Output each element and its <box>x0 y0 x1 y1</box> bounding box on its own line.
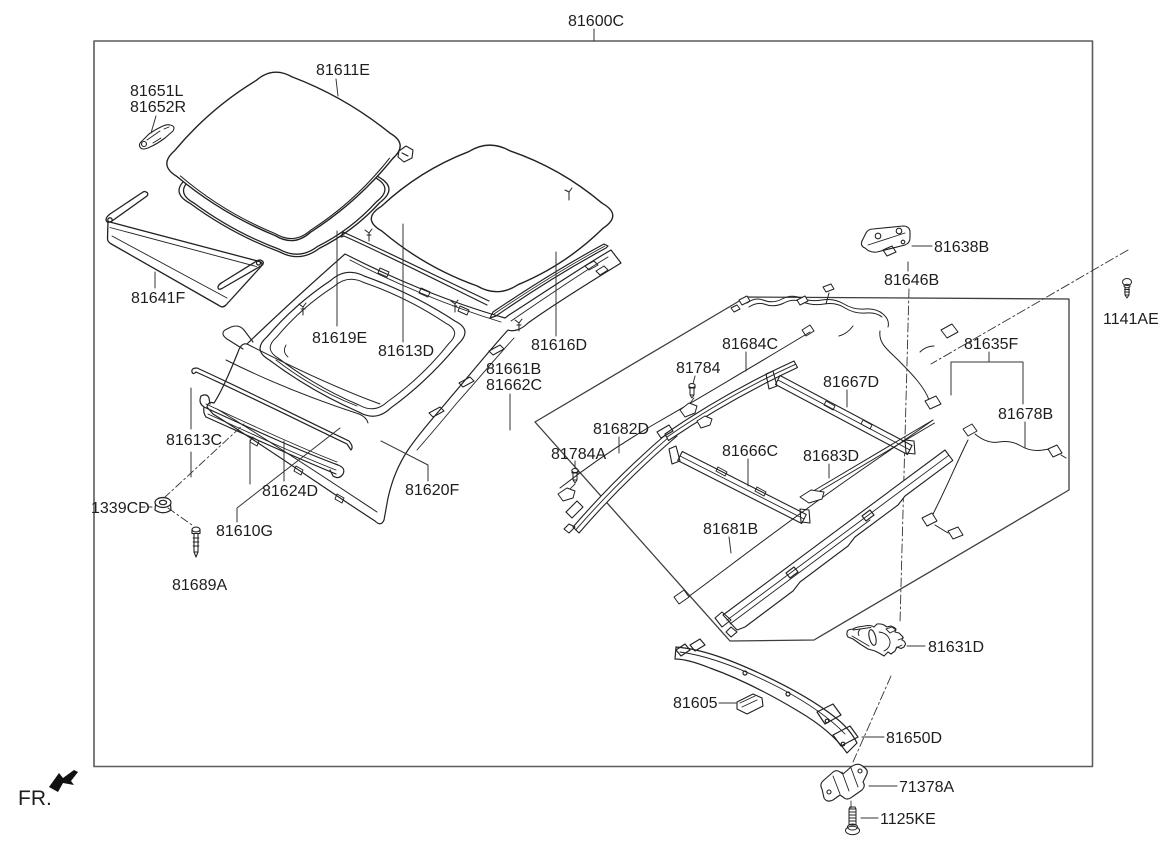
svg-text:81678B: 81678B <box>998 406 1053 423</box>
svg-text:81784A: 81784A <box>551 446 606 463</box>
svg-text:81613D: 81613D <box>378 343 434 360</box>
svg-text:81619E: 81619E <box>312 330 367 347</box>
svg-text:81662C: 81662C <box>486 377 542 394</box>
svg-text:81651L: 81651L <box>130 83 183 100</box>
svg-text:81784: 81784 <box>676 360 721 377</box>
svg-text:81620F: 81620F <box>405 482 459 499</box>
svg-text:81683D: 81683D <box>803 448 859 465</box>
svg-text:81624D: 81624D <box>262 483 318 500</box>
svg-text:81600C: 81600C <box>568 13 624 30</box>
svg-text:81635F: 81635F <box>964 336 1018 353</box>
svg-text:81681B: 81681B <box>703 521 758 538</box>
svg-text:81611E: 81611E <box>316 62 370 79</box>
svg-text:81667D: 81667D <box>823 374 879 391</box>
svg-text:81684C: 81684C <box>722 336 778 353</box>
svg-text:81661B: 81661B <box>486 361 541 378</box>
svg-text:81646B: 81646B <box>884 272 939 289</box>
svg-text:1125KE: 1125KE <box>880 811 936 828</box>
svg-text:FR.: FR. <box>18 787 52 810</box>
svg-text:81650D: 81650D <box>886 730 942 747</box>
svg-text:81605: 81605 <box>673 695 718 712</box>
svg-text:81682D: 81682D <box>593 421 649 438</box>
svg-text:81613C: 81613C <box>166 432 222 449</box>
svg-text:71378A: 71378A <box>899 779 954 796</box>
svg-text:1141AE: 1141AE <box>1103 311 1159 328</box>
svg-text:81666C: 81666C <box>722 443 778 460</box>
svg-text:81652R: 81652R <box>130 99 186 116</box>
svg-text:81631D: 81631D <box>928 639 984 656</box>
svg-text:81616D: 81616D <box>531 337 587 354</box>
svg-text:81610G: 81610G <box>216 523 273 540</box>
svg-text:81638B: 81638B <box>934 239 989 256</box>
svg-text:1339CD: 1339CD <box>91 500 150 517</box>
svg-text:81689A: 81689A <box>172 577 227 594</box>
svg-text:81641F: 81641F <box>131 290 185 307</box>
